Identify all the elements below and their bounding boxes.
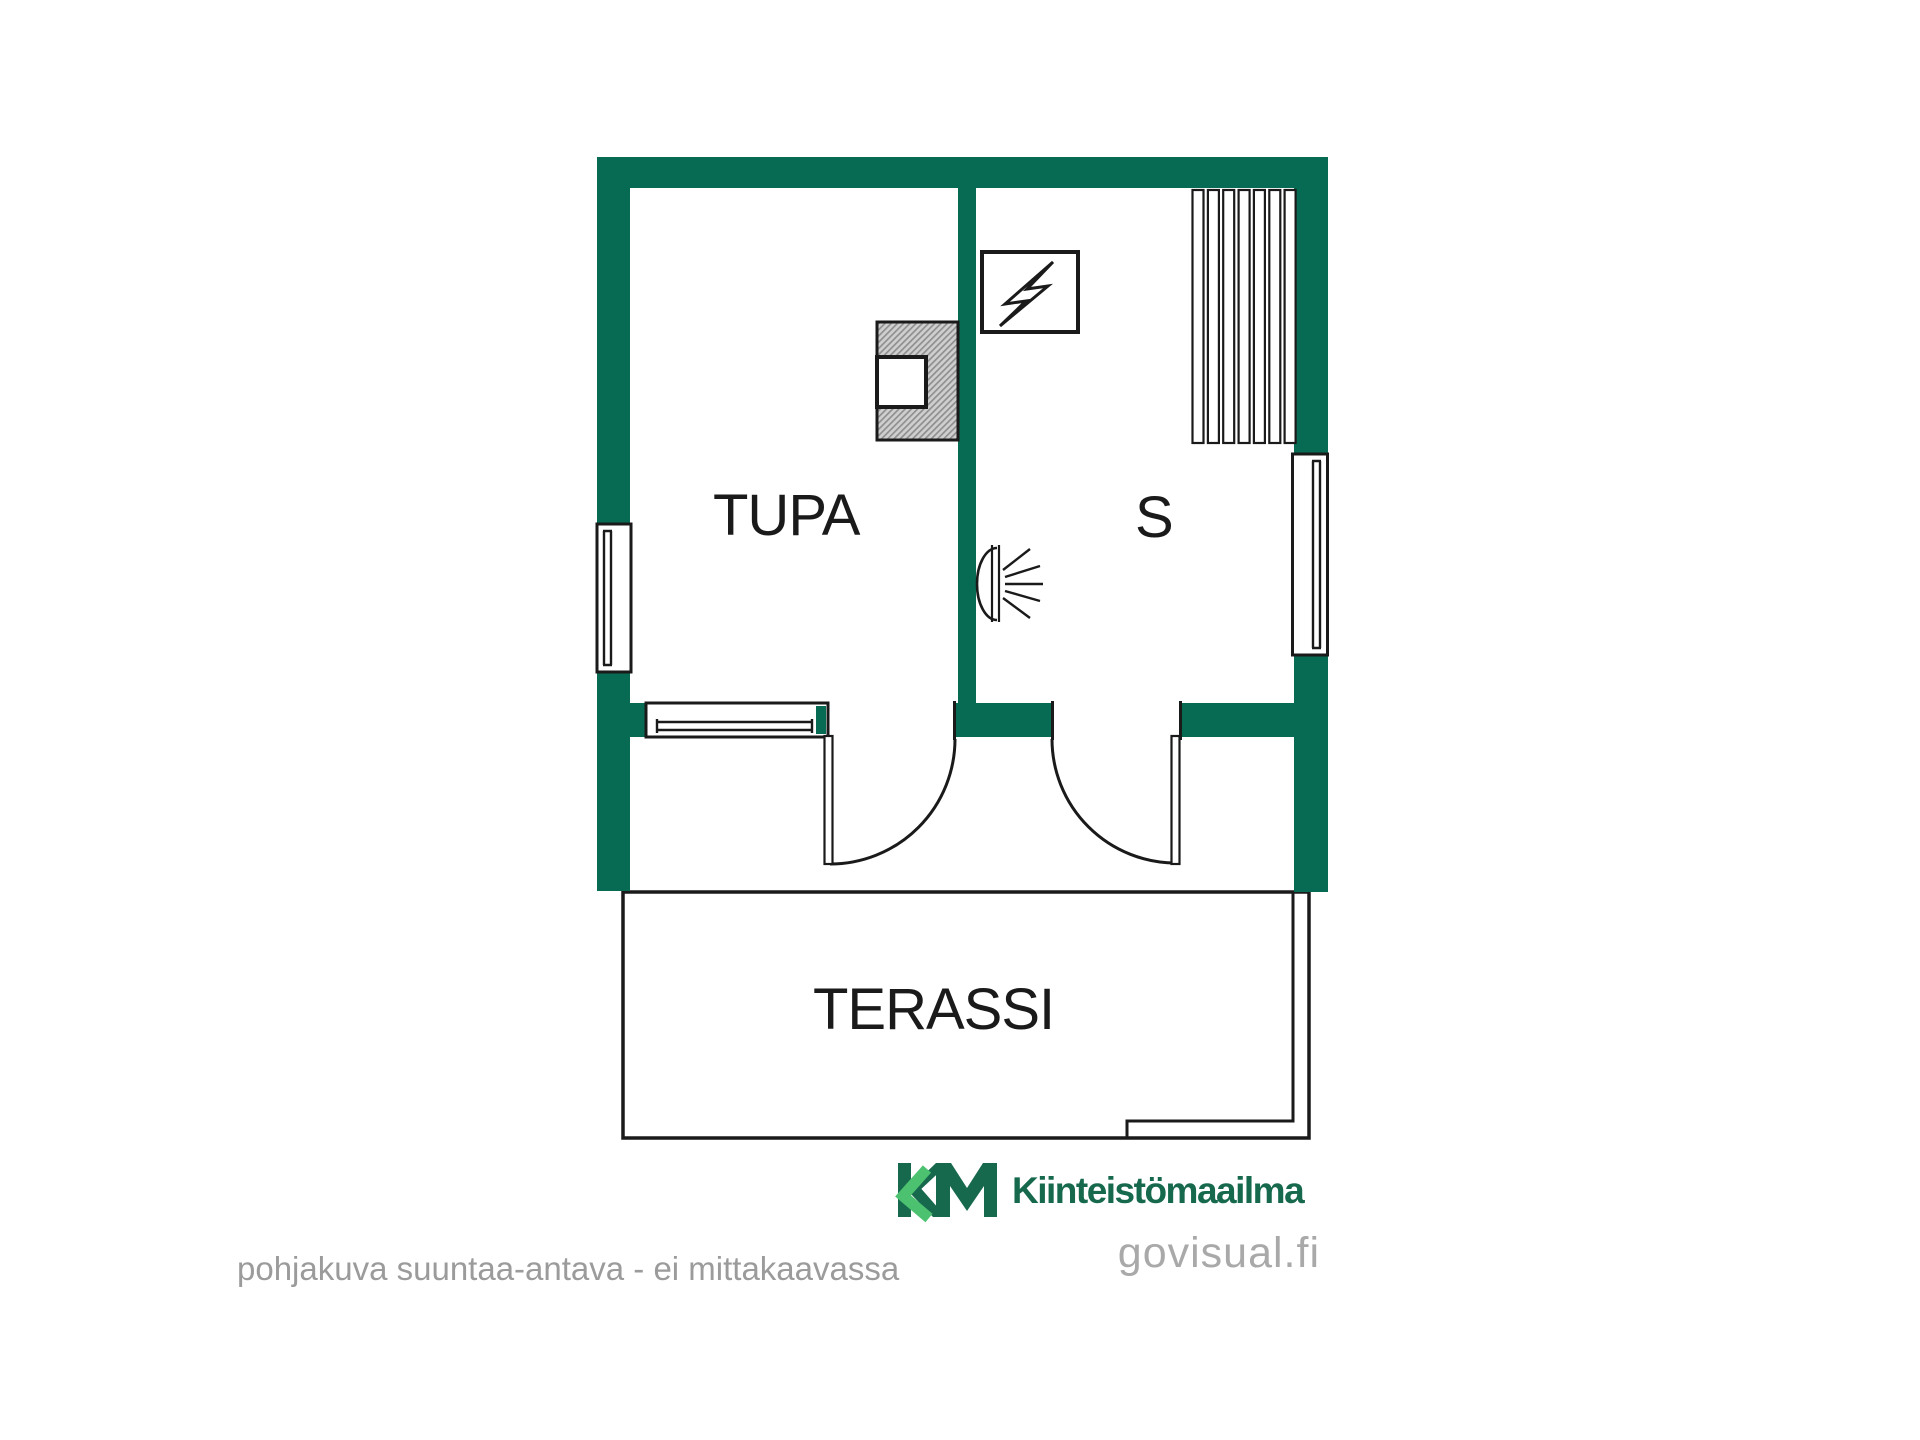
room-label-tupa: TUPA: [713, 483, 861, 548]
floorplan-canvas: TUPA S TERASSI Kiinteistömaailma govisua…: [0, 0, 1920, 1440]
door-tupa: [825, 736, 956, 864]
wall-partition: [958, 186, 976, 737]
window-bottom-frame: [646, 703, 828, 737]
light-rays: [1003, 549, 1043, 618]
wall-right-upper: [1294, 157, 1328, 454]
door-sauna: [1052, 736, 1180, 864]
window-left: [597, 524, 631, 672]
bench-slat: [1193, 190, 1204, 443]
room-label-terrace: TERASSI: [813, 977, 1054, 1042]
sauna-stove: [877, 322, 958, 440]
disclaimer-text: pohjakuva suuntaa-antava - ei mittakaava…: [237, 1250, 900, 1287]
window-left-frame: [597, 524, 631, 672]
brand-name: Kiinteistömaailma: [1012, 1170, 1305, 1211]
light-dome: [977, 548, 997, 620]
door-sauna-leaf: [1172, 736, 1180, 864]
km-logo-icon: [898, 1163, 997, 1218]
bench-slat: [1208, 190, 1219, 443]
window-right-frame: [1293, 454, 1328, 655]
wall-bottom-right: [1182, 703, 1294, 737]
electric-panel-box: [982, 252, 1078, 332]
wall-left-lower: [597, 672, 630, 891]
wall-top: [597, 157, 1328, 188]
door-sauna-swing-arc: [1052, 739, 1176, 863]
wall-bottom-middle: [955, 703, 1052, 737]
door-tupa-leaf: [825, 736, 833, 864]
window-right: [1293, 454, 1328, 655]
bench-slat: [1223, 190, 1234, 443]
wall-light-icon: [977, 545, 1043, 622]
logo-m: [936, 1163, 997, 1217]
bench-slat: [1269, 190, 1280, 443]
website-text: govisual.fi: [1118, 1229, 1320, 1277]
wall-left-upper: [597, 157, 630, 524]
wall-right-lower: [1294, 655, 1328, 892]
sauna-bench: [1193, 190, 1296, 443]
floorplan-svg: TUPA S TERASSI Kiinteistömaailma govisua…: [0, 0, 1920, 1440]
bench-slat: [1254, 190, 1265, 443]
door-tupa-swing-arc: [830, 739, 955, 864]
light-face: [992, 545, 999, 622]
room-label-sauna: S: [1135, 485, 1173, 550]
bench-slat: [1239, 190, 1250, 443]
window-bottom-stub: [816, 706, 826, 734]
bench-slat: [1285, 190, 1296, 443]
stove-hatch-opening: [877, 357, 926, 407]
electric-panel-icon: [982, 252, 1078, 332]
window-bottom: [646, 703, 828, 737]
